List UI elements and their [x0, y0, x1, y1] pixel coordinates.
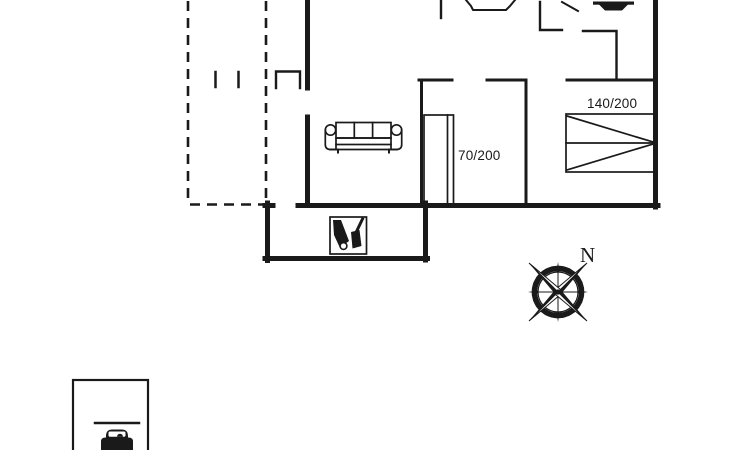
single-bed-icon: [424, 115, 454, 205]
single-bed-size-label: 70/200: [458, 148, 501, 163]
terrace-dashed-outline: [188, 1, 266, 205]
car-icon: [101, 430, 133, 450]
compass-rose-icon: [528, 262, 588, 322]
toilet-icon: [593, 2, 634, 11]
floorplan-drawing: [0, 0, 730, 450]
door-swing-line: [562, 2, 578, 11]
double-bed-size-label: 140/200: [587, 96, 637, 111]
sofa-icon: [325, 123, 401, 153]
garden-tools-icon: [330, 217, 367, 254]
double-bed-icon: [566, 114, 654, 172]
floorplan-canvas: 70/200 140/200 N: [0, 0, 730, 450]
compass-north-label: N: [580, 243, 595, 268]
sink-icon: [466, 0, 515, 10]
